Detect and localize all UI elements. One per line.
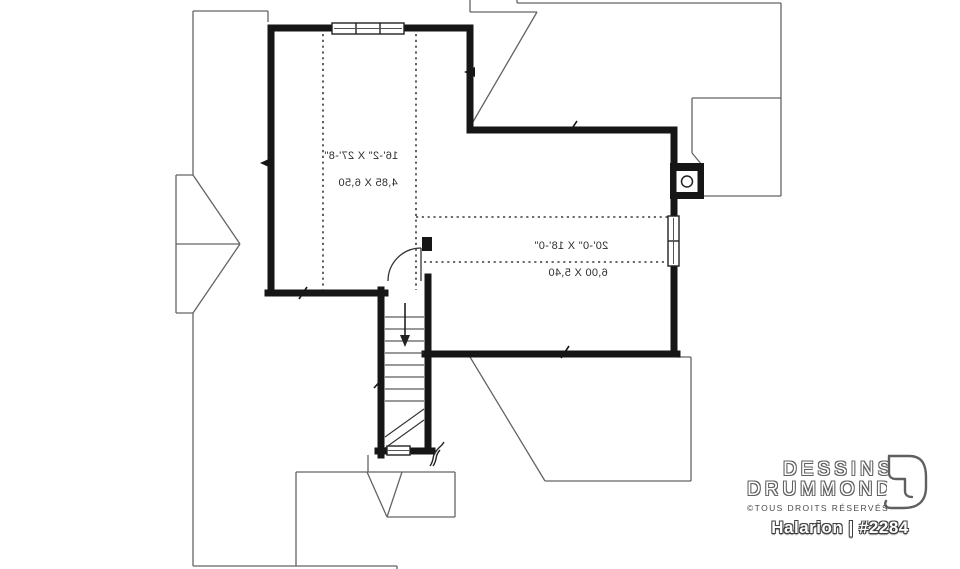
roof-outline-bottom-center: [296, 455, 455, 566]
floor-plan-page: 16'-2" X 27'-8" 4,85 X 6,50 20'-0" X 18'…: [0, 0, 960, 569]
roof-outline-bottom-right: [470, 357, 691, 481]
room-dims-left-imperial: 16'-2" X 27'-8": [324, 150, 398, 162]
room-dims-right-imperial: 20'-0" X 18'-0": [534, 240, 608, 252]
room-dims-right: 20'-0" X 18'-0" 6,00 X 5,40: [498, 226, 658, 307]
winder-treads: [385, 409, 424, 448]
brand-name-line2: DRUMMOND: [747, 479, 894, 501]
plan-title: Halarion | #2284: [745, 518, 935, 538]
room-dims-left: 16'-2" X 27'-8" 4,85 X 6,50: [298, 136, 438, 217]
chimney: [670, 163, 704, 199]
double-window-icon: [668, 216, 679, 266]
room-dims-left-metric: 4,85 X 6,50: [298, 177, 438, 191]
brand-rights-notice: ©TOUS DROITS RÉSERVÉS: [747, 503, 889, 513]
roof-outline-top-right: [470, 0, 781, 196]
triple-window-icon: [332, 23, 404, 34]
stair-down-arrow-icon: [400, 303, 410, 347]
room-dims-right-metric: 6,00 X 5,40: [498, 267, 658, 281]
stair-window-icon: [387, 446, 410, 455]
door-jamb-stub: [422, 237, 432, 251]
door-swing-icon: [388, 248, 421, 281]
